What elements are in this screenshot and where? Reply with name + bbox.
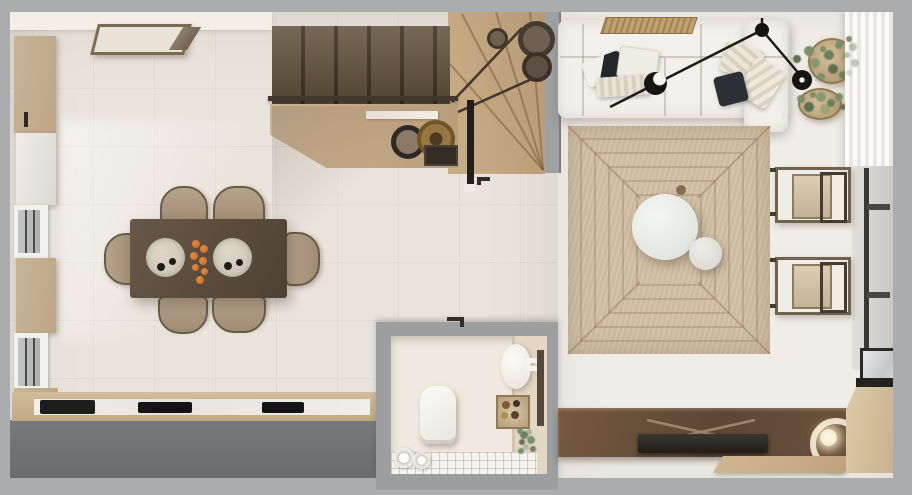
placemat-left	[146, 238, 185, 277]
left-window-lower	[14, 333, 48, 391]
table-handle	[676, 185, 686, 195]
bottle	[501, 412, 508, 419]
orange-fruit	[196, 276, 204, 284]
sheer-curtain	[845, 12, 893, 170]
landing-pot-small	[487, 28, 508, 49]
tv-screen	[638, 434, 768, 453]
wood-plank	[713, 456, 853, 473]
dining-chair-right	[285, 232, 320, 286]
round-shelf	[496, 395, 530, 429]
lamp-shade-right	[792, 70, 812, 90]
radiator-rung	[867, 204, 890, 210]
chair-arm-cap	[770, 212, 776, 216]
bowl	[157, 263, 165, 271]
bathroom	[376, 322, 558, 487]
placemat-right	[213, 238, 252, 277]
side-table	[689, 237, 722, 270]
threshold-mark	[460, 317, 464, 327]
window-mullion	[33, 338, 35, 386]
rail-bracket	[477, 177, 481, 185]
rolled-towel	[413, 452, 430, 469]
window-mullion	[33, 210, 35, 253]
curtain-plant-overlap	[846, 36, 852, 42]
toilet	[420, 386, 456, 444]
cooktop-left	[138, 402, 192, 413]
window-glass	[18, 210, 40, 253]
orange-fruit	[192, 264, 199, 271]
cabinet-handle	[24, 112, 28, 127]
bathroom-basin	[501, 344, 531, 389]
kitchen-sink	[40, 400, 95, 414]
chair-arm-cap	[770, 258, 776, 262]
window-mullion	[25, 338, 27, 386]
left-window-upper	[14, 205, 48, 258]
floor-plan-render	[0, 0, 912, 495]
ring-lamp-bulb	[820, 429, 837, 446]
bathroom-wall-protrusion	[376, 478, 558, 490]
bottle	[502, 401, 510, 409]
chair-back	[820, 172, 847, 223]
plant-basket-bottom	[798, 88, 842, 120]
bathroom-interior	[391, 336, 544, 474]
stair-straight-treads	[272, 26, 450, 106]
plant-foliage-top	[820, 46, 826, 52]
mat-border-left	[0, 0, 10, 495]
dining-chair-bottom-right	[212, 296, 266, 333]
bowl	[236, 259, 243, 266]
window-sill	[846, 387, 893, 473]
plant-foliage-bottom	[810, 92, 816, 98]
bottle	[511, 411, 519, 419]
fridge-panel	[16, 133, 56, 205]
bowl	[169, 258, 176, 265]
lamp-shade-left	[644, 72, 667, 95]
bathroom-door-edge	[537, 350, 544, 426]
rolled-towel	[394, 448, 414, 468]
bottom-wall	[10, 420, 376, 478]
orange-fruit	[200, 245, 208, 253]
mat-border-right	[893, 0, 912, 495]
bowl	[224, 262, 232, 270]
bathroom-plant	[517, 428, 523, 434]
radiator-rung	[867, 292, 890, 298]
stair-handrail	[268, 96, 458, 101]
orange-fruit	[199, 257, 207, 265]
newel-cap	[464, 184, 475, 192]
cooktop-right	[262, 402, 304, 413]
lounge-chair-top	[775, 167, 851, 223]
chair-arm-cap	[770, 304, 776, 308]
dining-chair-bottom-left	[158, 296, 208, 334]
orange-fruit	[190, 252, 198, 260]
landing-pot-medium	[522, 52, 552, 82]
orange-fruit	[192, 240, 200, 248]
left-wall-cabinet-middle	[16, 258, 56, 333]
decor-box	[424, 145, 458, 166]
chair-back	[820, 262, 847, 313]
lamp-ceiling-mount	[755, 23, 769, 37]
left-wall-cabinet-upper	[14, 36, 56, 133]
bottle	[513, 400, 520, 407]
window-mullion	[25, 210, 27, 253]
chair-arm-cap	[770, 168, 776, 172]
mat-border-top	[0, 0, 912, 12]
orange-fruit	[201, 268, 208, 275]
stair-floor-shadow	[272, 106, 422, 226]
lounge-chair-bottom	[775, 257, 851, 315]
coffee-table	[632, 194, 698, 260]
stair-newel-post	[467, 100, 474, 188]
right-wall	[852, 166, 893, 370]
window-glass	[18, 338, 40, 386]
radiator-vertical-bar	[864, 168, 869, 360]
